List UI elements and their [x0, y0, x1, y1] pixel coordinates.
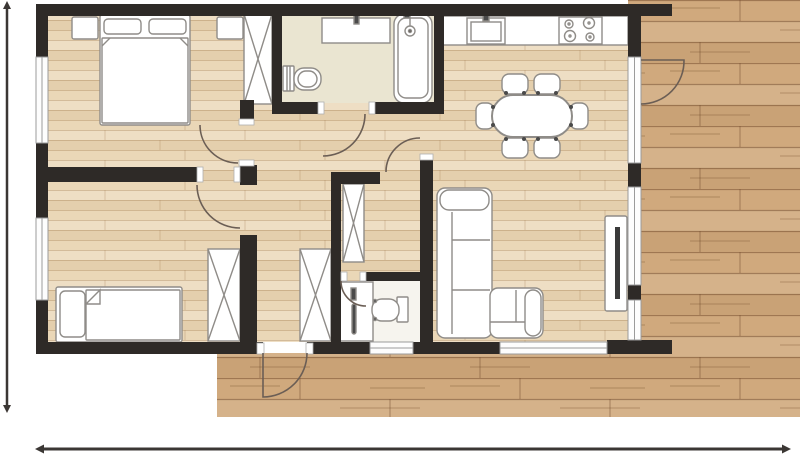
shower-head-dot [409, 30, 412, 33]
wardrobe-bedroom2 [208, 249, 240, 341]
wall-bathroom-south-b [370, 102, 444, 114]
wall-right-a [628, 16, 641, 57]
deck-right [628, 0, 800, 417]
wardrobe-bedroom1 [244, 14, 272, 104]
dining-chair [534, 138, 560, 158]
toilet-hinge-dot [373, 299, 376, 302]
wardrobe-hall-bottom [300, 249, 331, 341]
wall-top [37, 4, 672, 16]
pillow [60, 291, 85, 337]
wall-bathroom-west [272, 16, 282, 114]
wall-bedroom2-east [240, 235, 257, 354]
wall-bathroom-east [434, 16, 444, 102]
wall-right-b [628, 163, 641, 187]
blanket [102, 38, 188, 123]
wall-bedrooms-divider [48, 167, 197, 182]
jamb [306, 343, 313, 354]
jamb [318, 102, 324, 114]
toilet-tank [283, 66, 294, 91]
single-bed [56, 287, 182, 342]
nightstand-right [217, 17, 243, 39]
jamb [257, 343, 264, 354]
jamb [239, 160, 254, 166]
jamb [341, 272, 347, 281]
jamb [239, 119, 254, 125]
jamb [420, 154, 433, 160]
wall-bottom-a [37, 342, 263, 354]
tv-screen-bar [615, 227, 620, 299]
floor-plan-page [0, 0, 800, 456]
wall-living-west [420, 160, 433, 354]
wall-right-c [628, 285, 641, 300]
nightstand-left [72, 17, 98, 39]
sofa-armrest-right [525, 290, 541, 336]
wall-pillar [240, 165, 257, 185]
sofa-armrest-top [440, 190, 489, 210]
jamb [369, 102, 375, 114]
dining-chair [502, 138, 528, 158]
jamb [360, 272, 366, 281]
wardrobe-hall-nook [343, 184, 364, 262]
dining-chair [502, 74, 528, 94]
washbasin-bar [352, 304, 356, 334]
pillow [104, 19, 141, 34]
dining-chair [534, 74, 560, 94]
kitchen [440, 12, 628, 45]
wall-nook-west [331, 172, 341, 342]
wall-nook-top [331, 172, 380, 184]
wall-right-d [628, 340, 641, 354]
deck-bottom [217, 353, 628, 417]
wall-wc-north [366, 272, 420, 281]
dining-table [492, 95, 572, 137]
toilet-hinge-dot [373, 317, 376, 320]
wall-bottom-b [307, 342, 370, 354]
wall-bathroom-south-a [272, 102, 323, 114]
floor-plan-canvas [0, 0, 800, 456]
jamb [234, 167, 240, 182]
pillow [149, 19, 186, 34]
washbasin-faucet-icon [351, 288, 356, 300]
jamb [197, 167, 203, 182]
